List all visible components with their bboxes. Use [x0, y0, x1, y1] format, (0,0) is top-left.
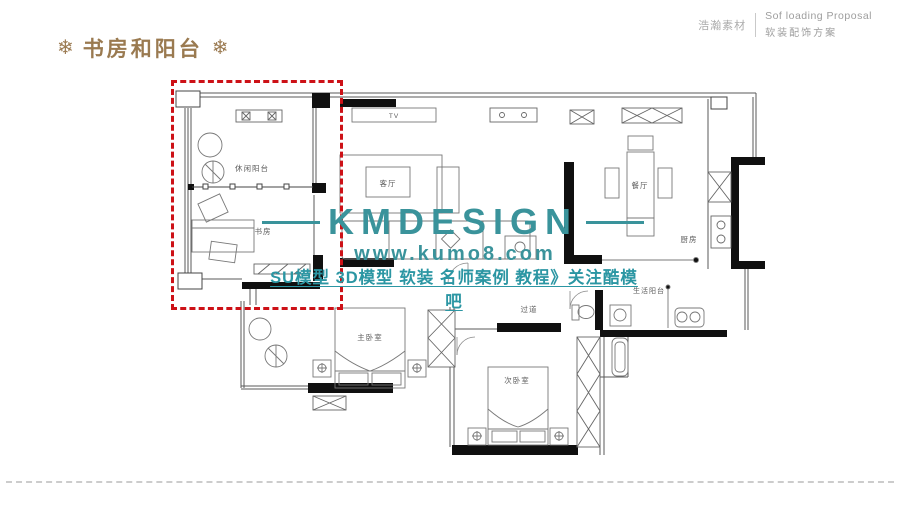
room-label-tv: TV [389, 113, 399, 120]
room-label-master-bedroom: 主卧室 [357, 332, 383, 342]
watermark-brand-row: KMDESIGN [262, 204, 644, 240]
room-label-second-bedroom: 次卧室 [504, 375, 530, 385]
brand-tagline-en: Sof loading Proposal [765, 10, 872, 22]
watermark-rule-right [586, 221, 644, 224]
page-title-block: ❄ 书房和阳台 ❄ [57, 33, 229, 63]
floral-ornament-icon: ❄ [212, 38, 229, 58]
watermark-tagline: SU模型 3D模型 软装 名师案例 教程》关注酷模吧 [266, 264, 642, 312]
room-label-kitchen: 厨房 [681, 234, 698, 244]
room-label-living: 客厅 [380, 178, 397, 188]
brand-name-cn: 浩瀚素材 [698, 17, 746, 33]
page-title: 书房和阳台 [83, 33, 203, 63]
brand-tagline-cn: 软装配饰方案 [765, 24, 872, 39]
watermark-rule-left [262, 221, 320, 224]
brand-divider [755, 13, 756, 37]
bottom-divider [6, 481, 894, 483]
room-label-dining: 餐厅 [632, 181, 649, 190]
watermark-brand: KMDESIGN [328, 204, 578, 240]
brand-header: 浩瀚素材 Sof loading Proposal 软装配饰方案 [698, 10, 872, 39]
floral-ornament-icon: ❄ [57, 38, 74, 58]
watermark-url: www.kumo8.com [330, 243, 580, 266]
